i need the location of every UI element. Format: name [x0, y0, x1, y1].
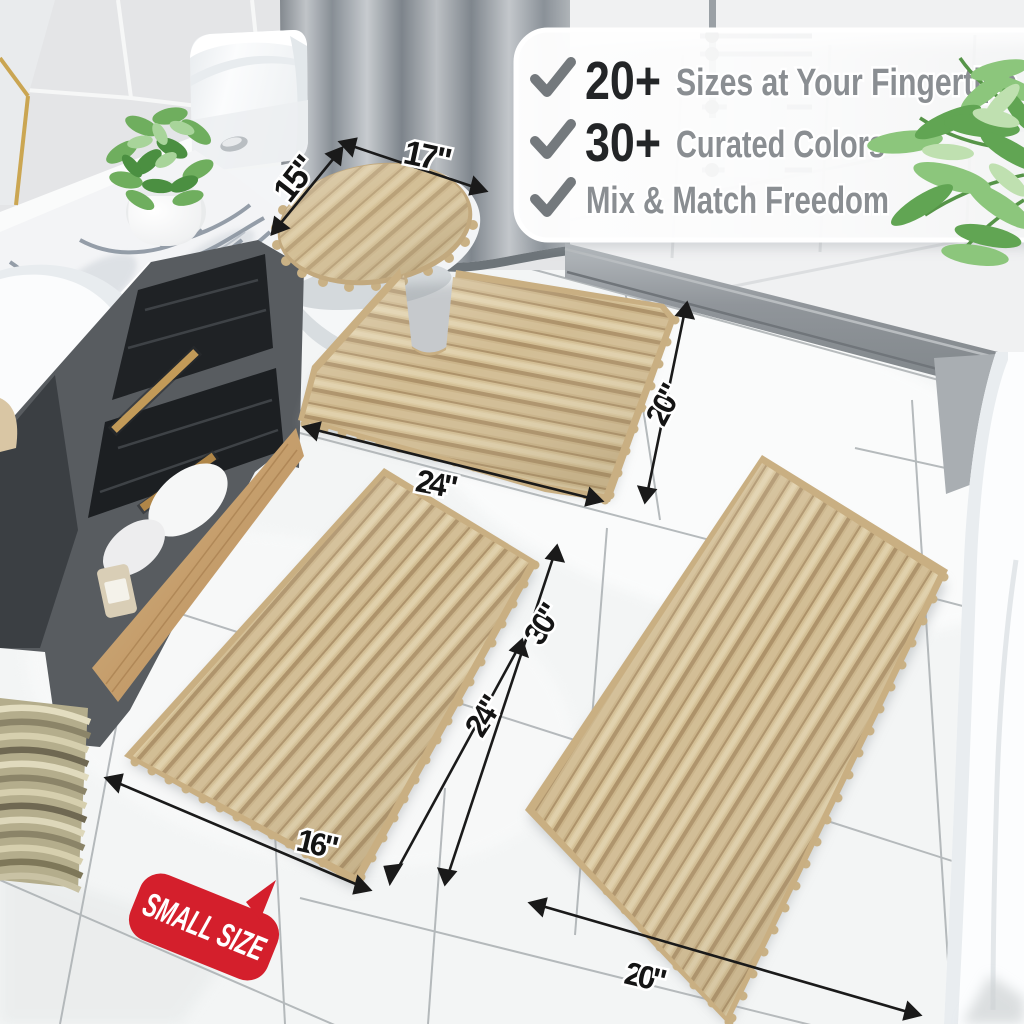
svg-text:Curated Colors: Curated Colors	[676, 124, 885, 166]
svg-text:20+: 20+	[585, 51, 661, 111]
svg-text:Mix & Match Freedom: Mix & Match Freedom	[586, 180, 889, 222]
svg-text:30+: 30+	[585, 113, 661, 173]
